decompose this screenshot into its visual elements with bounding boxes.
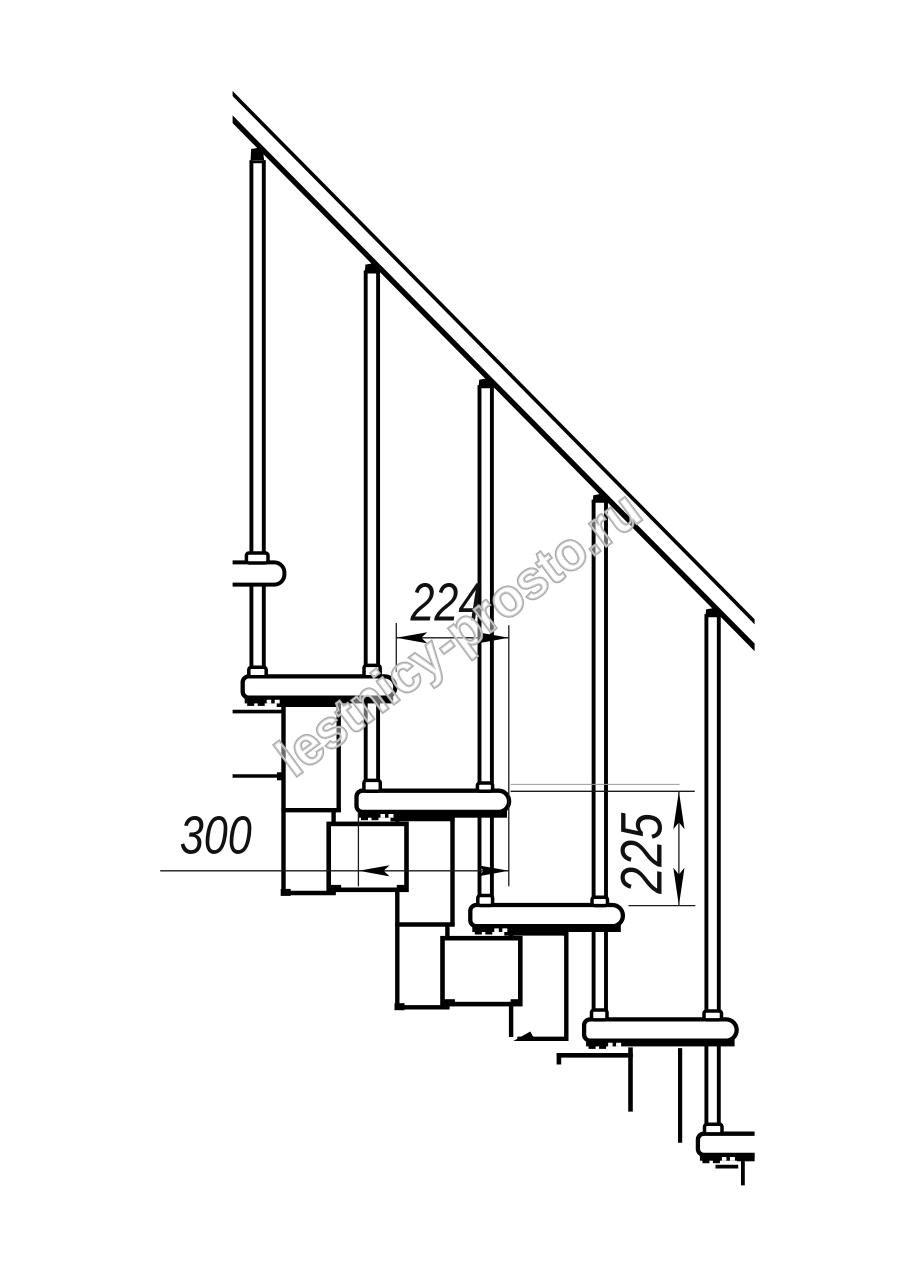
svg-text:225: 225	[610, 812, 675, 894]
svg-text:300: 300	[180, 805, 252, 865]
